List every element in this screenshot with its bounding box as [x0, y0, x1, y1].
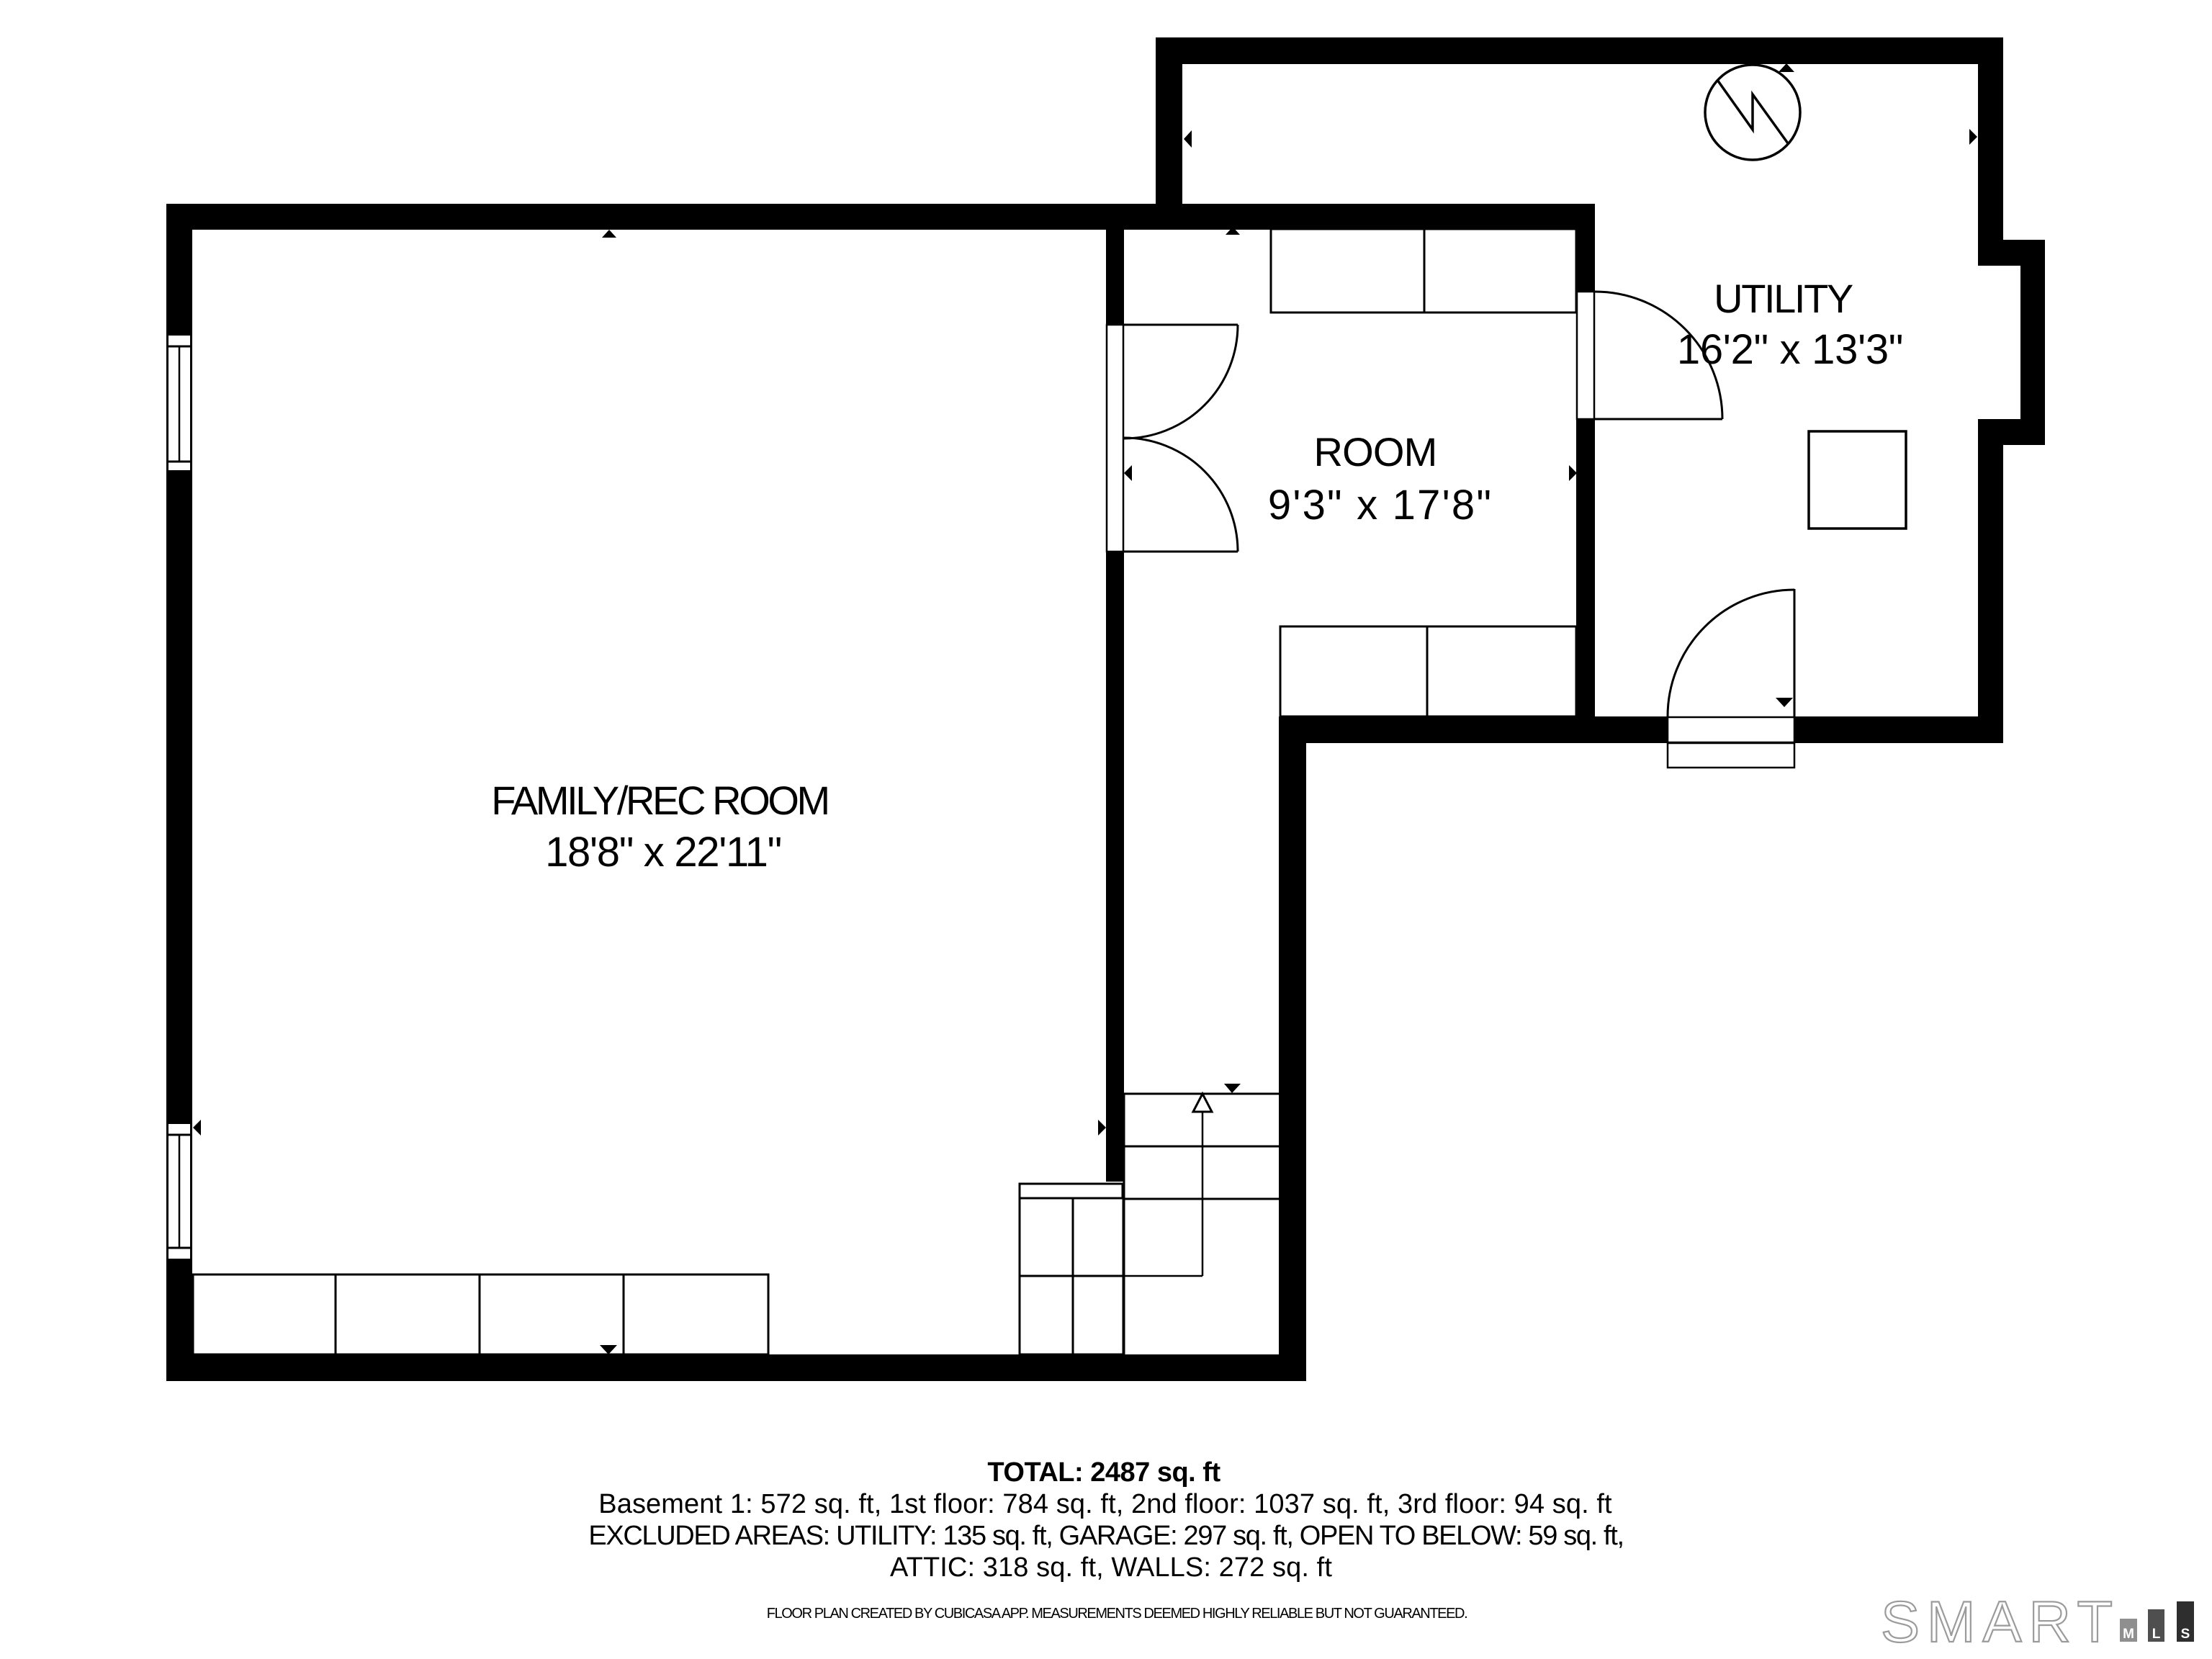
svg-text:M: M [2123, 1627, 2134, 1642]
svg-text:FAMILY/REC ROOM: FAMILY/REC ROOM [491, 778, 828, 823]
svg-text:L: L [2152, 1627, 2161, 1642]
svg-text:9'3" x 17'8": 9'3" x 17'8" [1268, 482, 1493, 529]
svg-text:UTILITY: UTILITY [1714, 276, 1853, 321]
svg-text:16'2" x 13'3": 16'2" x 13'3" [1677, 326, 1903, 373]
svg-text:ROOM: ROOM [1313, 429, 1437, 475]
svg-text:18'8" x 22'11": 18'8" x 22'11" [545, 829, 781, 876]
svg-text:EXCLUDED AREAS: UTILITY: 135 s: EXCLUDED AREAS: UTILITY: 135 sq. ft, GAR… [588, 1521, 1623, 1551]
svg-text:ATTIC: 318 sq. ft, WALLS: 272: ATTIC: 318 sq. ft, WALLS: 272 sq. ft [890, 1552, 1332, 1583]
svg-text:TOTAL: 2487 sq. ft: TOTAL: 2487 sq. ft [987, 1457, 1220, 1488]
svg-text:Basement 1: 572 sq. ft, 1st fl: Basement 1: 572 sq. ft, 1st floor: 784 s… [598, 1489, 1612, 1519]
svg-text:S: S [2181, 1627, 2190, 1642]
svg-text:FLOOR PLAN CREATED BY CUBICASA: FLOOR PLAN CREATED BY CUBICASA APP. MEAS… [767, 1606, 1467, 1622]
svg-text:SMART: SMART [1881, 1590, 2120, 1655]
